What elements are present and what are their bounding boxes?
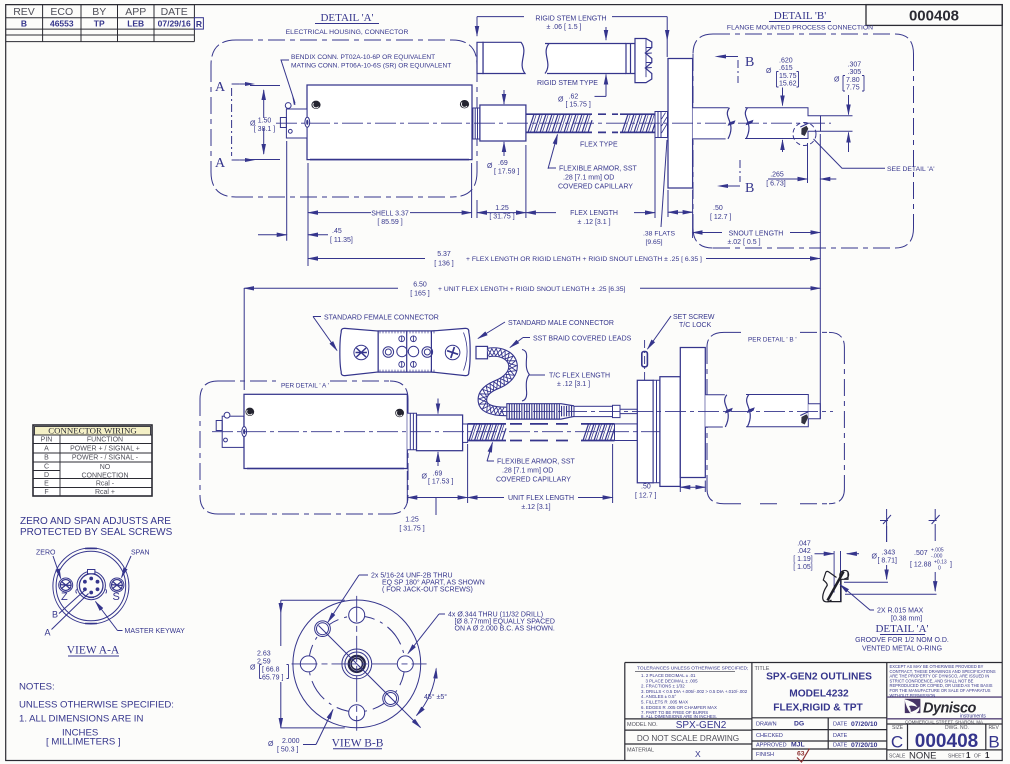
svg-text:.50: .50 [641, 484, 651, 491]
svg-text:OF: OF [974, 754, 981, 760]
svg-text:.69: .69 [433, 471, 443, 478]
svg-text:1: 1 [985, 751, 990, 760]
svg-text:UNLESS OTHERWISE SPECIFIED:: UNLESS OTHERWISE SPECIFIED: [19, 700, 174, 711]
svg-text:A: A [44, 446, 49, 453]
svg-text:E: E [44, 481, 49, 488]
svg-text:PIN: PIN [41, 437, 53, 444]
svg-text:Z: Z [61, 591, 68, 603]
svg-text:ZERO: ZERO [36, 550, 56, 557]
svg-text:T/C LOCK: T/C LOCK [679, 322, 712, 329]
svg-text:07/20/10: 07/20/10 [851, 742, 878, 749]
svg-text:Ø: Ø [422, 474, 428, 481]
svg-text:[ 31.75 ]: [ 31.75 ] [489, 214, 514, 221]
svg-text:000408: 000408 [909, 8, 959, 25]
svg-text:DG: DG [794, 721, 804, 728]
svg-text:DETAIL 'A': DETAIL 'A' [320, 12, 373, 24]
svg-text:COMMERCIAL STREET, SHARON, MA: COMMERCIAL STREET, SHARON, MA [905, 719, 983, 724]
svg-text:.28 [7.1 mm] OD: .28 [7.1 mm] OD [502, 468, 553, 475]
svg-text:EQ SP 180° APART, AS SHOWN: EQ SP 180° APART, AS SHOWN [382, 579, 485, 587]
svg-text:]: ] [950, 562, 952, 569]
svg-text:45° ±5°: 45° ±5° [424, 693, 447, 701]
svg-text:APP: APP [125, 6, 146, 18]
svg-text:7.80: 7.80 [846, 77, 860, 84]
svg-text:C: C [891, 733, 903, 752]
svg-text:[ 1.19]: [ 1.19] [793, 556, 813, 563]
svg-text:C: C [44, 464, 49, 471]
svg-text:A: A [45, 628, 51, 638]
svg-text:5.37: 5.37 [437, 251, 451, 258]
svg-text:SEE DETAIL 'A': SEE DETAIL 'A' [887, 166, 935, 173]
svg-text:B: B [21, 19, 27, 29]
svg-text:SIZE: SIZE [892, 725, 904, 731]
svg-text:Ø: Ø [268, 741, 274, 748]
svg-text:DATE: DATE [833, 722, 848, 728]
svg-text:TP: TP [94, 19, 105, 29]
svg-text:[ 31.75 ]: [ 31.75 ] [399, 525, 424, 532]
svg-text:2. FRACTIONS ± 1/32: 2. FRACTIONS ± 1/32 [641, 684, 685, 689]
svg-text:MATERIAL: MATERIAL [627, 748, 654, 754]
svg-text:1.25: 1.25 [495, 205, 509, 212]
svg-text:2x 5/16-24 UNF-2B THRU: 2x 5/16-24 UNF-2B THRU [371, 573, 453, 580]
svg-text:DRAWN: DRAWN [756, 722, 777, 728]
svg-text:3 PLACE DECIMAL ± .005: 3 PLACE DECIMAL ± .005 [646, 678, 699, 683]
svg-text:DO NOT SCALE DRAWING: DO NOT SCALE DRAWING [637, 734, 739, 743]
svg-text:1. ALL DIMENSIONS ARE IN: 1. ALL DIMENSIONS ARE IN [19, 714, 143, 725]
svg-text:TOLERANCES UNLESS OTHERWISE SP: TOLERANCES UNLESS OTHERWISE SPECIFIED; [637, 666, 748, 672]
svg-text:SNOUT LENGTH: SNOUT LENGTH [729, 230, 784, 237]
svg-text:± .12 [3.1 ]: ± .12 [3.1 ] [577, 219, 610, 226]
svg-text:MODEL4232: MODEL4232 [789, 689, 849, 700]
svg-text:MATING CONN. PT06A-10-6S (SR): MATING CONN. PT06A-10-6S (SR) OR EQUIVAL… [291, 63, 451, 70]
svg-text:VENTED METAL O-RING: VENTED METAL O-RING [862, 646, 942, 653]
svg-text:X: X [695, 749, 701, 759]
svg-text:[ 12.88: [ 12.88 [910, 562, 932, 569]
svg-text:COVERED CAPILLARY: COVERED CAPILLARY [496, 477, 571, 484]
svg-text:S: S [113, 591, 120, 603]
svg-text:[Ø 8.77mm] EQUALLY SPACED: [Ø 8.77mm] EQUALLY SPACED [455, 619, 555, 626]
svg-text:APPROVED: APPROVED [756, 743, 787, 749]
svg-text:[ 11.35]: [ 11.35] [330, 237, 353, 244]
svg-text:[ 8.71]: [ 8.71] [878, 558, 898, 565]
svg-text:.45: .45 [332, 228, 342, 235]
svg-text:NO: NO [100, 464, 111, 471]
svg-text:PER DETAIL ' B ': PER DETAIL ' B ' [748, 337, 797, 344]
svg-text:A: A [215, 156, 226, 171]
svg-text:2.000: 2.000 [282, 738, 300, 745]
svg-text:ECO: ECO [50, 6, 73, 18]
svg-text:F: F [44, 489, 48, 496]
svg-text:ELECTRICAL HOUSING, CONNECTOR: ELECTRICAL HOUSING, CONNECTOR [286, 29, 409, 36]
svg-text:+ UNIT FLEX LENGTH + RIGID SNO: + UNIT FLEX LENGTH + RIGID SNOUT LENGTH … [438, 286, 626, 293]
svg-text:[ 38.1 ]: [ 38.1 ] [254, 126, 275, 133]
svg-text:1. 2 PLACE DECIMAL ± .01: 1. 2 PLACE DECIMAL ± .01 [641, 673, 696, 678]
svg-text:MASTER KEYWAY: MASTER KEYWAY [125, 628, 186, 635]
svg-text:[ 6.73]: [ 6.73] [766, 181, 786, 188]
svg-text:SHELL 3.37: SHELL 3.37 [371, 210, 409, 217]
svg-text:FLEX,RIGID & TPT: FLEX,RIGID & TPT [773, 703, 863, 714]
svg-text:PROTECTED BY SEAL SCREWS: PROTECTED BY SEAL SCREWS [20, 527, 173, 538]
svg-text:8. ALL DIMENSIONS ARE IN INCHE: 8. ALL DIMENSIONS ARE IN INCHES. [641, 714, 717, 719]
svg-text:BY: BY [92, 6, 106, 18]
svg-text:CONNECTION: CONNECTION [81, 472, 128, 479]
svg-text:SET SCREW: SET SCREW [673, 314, 715, 321]
svg-text:SST BRAID COVERED LEADS: SST BRAID COVERED LEADS [533, 336, 632, 343]
svg-text:FLEXIBLE ARMOR, SST: FLEXIBLE ARMOR, SST [497, 459, 576, 466]
svg-text:VIEW B-B: VIEW B-B [332, 738, 384, 750]
svg-text:.50: .50 [713, 205, 723, 212]
svg-text:.507: .507 [914, 550, 928, 557]
svg-text:DATE: DATE [833, 743, 848, 749]
svg-text:GROOVE FOR 1/2 NOM O.D.: GROOVE FOR 1/2 NOM O.D. [855, 637, 949, 644]
svg-text:[0.38 mm]: [0.38 mm] [891, 616, 922, 623]
svg-text:65.79 ]: 65.79 ] [262, 675, 283, 682]
svg-text:POWER + / SIGNAL +: POWER + / SIGNAL + [70, 446, 140, 453]
svg-text:± .06 [ 1.5 ]: ± .06 [ 1.5 ] [547, 24, 582, 31]
svg-text:.307: .307 [848, 62, 862, 69]
svg-text:2.63: 2.63 [257, 651, 271, 658]
svg-text:A: A [215, 80, 226, 95]
svg-text:15.62: 15.62 [779, 81, 797, 88]
svg-text:Ø: Ø [250, 665, 256, 672]
svg-text:NONE: NONE [909, 751, 936, 762]
svg-text:VIEW A-A: VIEW A-A [67, 645, 120, 657]
svg-text:1.50: 1.50 [258, 118, 272, 125]
svg-text:15.75: 15.75 [779, 73, 797, 80]
svg-text:[ 17.59 ]: [ 17.59 ] [494, 169, 519, 176]
svg-text:( FOR JACK-OUT SCREWS): ( FOR JACK-OUT SCREWS) [382, 587, 473, 594]
svg-text:1: 1 [966, 751, 971, 760]
svg-text:CONNECTOR WIRING: CONNECTOR WIRING [48, 426, 137, 436]
svg-text:T/C FLEX LENGTH: T/C FLEX LENGTH [549, 373, 610, 380]
svg-text:Ø: Ø [558, 97, 564, 104]
svg-text:[ 1.05]: [ 1.05] [793, 564, 813, 571]
svg-text:BENDIX CONN. PT02A-10-6P OR EQ: BENDIX CONN. PT02A-10-6P OR EQUIVALENT [291, 54, 435, 61]
svg-text:07/20/10: 07/20/10 [851, 721, 878, 728]
svg-text:POWER - / SIGNAL -: POWER - / SIGNAL - [72, 455, 139, 462]
svg-text:63: 63 [797, 751, 805, 758]
svg-text:.615: .615 [779, 65, 793, 72]
svg-text:4x Ø.344 THRU (11/32 DRILL): 4x Ø.344 THRU (11/32 DRILL) [448, 612, 543, 619]
svg-text:0: 0 [938, 566, 941, 572]
svg-text:[9.65]: [9.65] [645, 239, 662, 246]
svg-text:SHEET: SHEET [948, 754, 965, 760]
svg-text:SPX-GEN2: SPX-GEN2 [676, 720, 727, 731]
svg-text:.042: .042 [797, 548, 811, 555]
svg-text:.305: .305 [848, 69, 862, 76]
svg-text:[ 15.75 ]: [ 15.75 ] [566, 102, 591, 109]
svg-text:[ 50.3 ]: [ 50.3 ] [277, 747, 298, 754]
svg-text:STANDARD MALE CONNECTOR: STANDARD MALE CONNECTOR [508, 320, 614, 327]
svg-text:07/29/16: 07/29/16 [158, 19, 191, 29]
svg-text:5. FILLETS R .005 MAX: 5. FILLETS R .005 MAX [641, 700, 688, 705]
svg-text:.047: .047 [797, 541, 811, 548]
svg-text:B: B [988, 733, 999, 752]
svg-text:D: D [44, 472, 49, 479]
svg-text:WITHOUT PERMISSION.: WITHOUT PERMISSION. [890, 693, 937, 698]
svg-text:REV: REV [989, 725, 1000, 731]
svg-text:[ 66.8: [ 66.8 [262, 667, 280, 674]
svg-text:CHECKED: CHECKED [756, 733, 783, 739]
svg-text:PER DETAIL ' A ': PER DETAIL ' A ' [281, 383, 329, 390]
svg-text:FLANGE MOUNTED PROCESS CONNECT: FLANGE MOUNTED PROCESS CONNECTION [727, 25, 873, 32]
svg-text:[ 85.59 ]: [ 85.59 ] [377, 219, 402, 226]
svg-text:1.25: 1.25 [405, 517, 419, 524]
svg-text:+ FLEX LENGTH OR RIGID LENGTH: + FLEX LENGTH OR RIGID LENGTH + RIGID SN… [466, 256, 702, 263]
svg-text:MJL: MJL [791, 742, 805, 749]
svg-text:[ 136 ]: [ 136 ] [434, 261, 454, 268]
svg-text:46553: 46553 [50, 19, 74, 29]
svg-text:SPAN: SPAN [131, 550, 150, 557]
svg-text:.62: .62 [569, 94, 579, 101]
svg-text:7.75: 7.75 [846, 85, 860, 92]
svg-text:.38 FLATS: .38 FLATS [643, 231, 675, 238]
svg-text:R: R [196, 19, 202, 29]
svg-text:REV: REV [13, 6, 35, 18]
svg-text:B: B [44, 455, 49, 462]
svg-text:2.59: 2.59 [257, 659, 271, 666]
svg-text:FUNCTION: FUNCTION [87, 437, 123, 444]
svg-text:DETAIL 'A': DETAIL 'A' [875, 623, 928, 635]
svg-text:.69: .69 [498, 160, 508, 167]
svg-text:[ 165 ]: [ 165 ] [410, 291, 430, 298]
svg-text:.28 [7.1 mm] OD: .28 [7.1 mm] OD [563, 175, 614, 182]
svg-text:.343: .343 [882, 550, 896, 557]
svg-text:[ 12.7 ]: [ 12.7 ] [710, 214, 731, 221]
svg-text:B: B [745, 181, 754, 196]
svg-text:B: B [52, 610, 58, 620]
svg-text:± .12 [3.1 ]: ± .12 [3.1 ] [557, 381, 590, 388]
svg-text:ON A Ø 2.000 B.C. AS SHOWN.: ON A Ø 2.000 B.C. AS SHOWN. [455, 626, 555, 633]
svg-text:RIGID STEM LENGTH: RIGID STEM LENGTH [535, 16, 606, 23]
svg-text:DATE: DATE [161, 6, 188, 18]
svg-text:[ 12.7 ]: [ 12.7 ] [635, 493, 656, 500]
svg-text:FLEXIBLE ARMOR, SST: FLEXIBLE ARMOR, SST [559, 166, 638, 173]
svg-text:4. ANGLES ± 0.5°: 4. ANGLES ± 0.5° [641, 694, 676, 699]
svg-text:NOTES:: NOTES: [19, 682, 55, 693]
svg-text:RIGID STEM TYPE: RIGID STEM TYPE [537, 80, 598, 87]
svg-text:Ø: Ø [766, 68, 772, 75]
svg-text:Rcal -: Rcal - [96, 481, 115, 488]
svg-text:000408: 000408 [915, 731, 978, 752]
svg-text:±.12 [3.1]: ±.12 [3.1] [521, 504, 550, 511]
svg-text:MODEL NO.: MODEL NO. [627, 722, 658, 728]
svg-text:6.50: 6.50 [413, 282, 427, 289]
svg-text:±.02 [ 0.5 ]: ±.02 [ 0.5 ] [727, 239, 760, 246]
svg-text:FINISH: FINISH [756, 752, 774, 758]
svg-text:COVERED CAPILLARY: COVERED CAPILLARY [558, 184, 633, 191]
svg-text:STANDARD FEMALE CONNECTOR: STANDARD FEMALE CONNECTOR [324, 315, 439, 322]
svg-text:FLEX TYPE: FLEX TYPE [580, 142, 618, 149]
svg-text:UNIT FLEX LENGTH: UNIT FLEX LENGTH [508, 495, 574, 502]
svg-text:LEB: LEB [127, 19, 144, 29]
svg-text:DETAIL 'B': DETAIL 'B' [774, 10, 826, 22]
svg-text:Rcal +: Rcal + [95, 489, 115, 496]
svg-text:3. DRILLS < 0.5 DIA +.005/-.00: 3. DRILLS < 0.5 DIA +.005/-.002 > 0.5 DI… [641, 689, 748, 694]
svg-text:FLEX LENGTH: FLEX LENGTH [570, 210, 618, 217]
svg-text:DATE: DATE [833, 733, 848, 739]
svg-text:B: B [745, 55, 754, 70]
svg-text:[ 17.53 ]: [ 17.53 ] [428, 479, 453, 486]
svg-text:ZERO AND SPAN ADJUSTS ARE: ZERO AND SPAN ADJUSTS ARE [20, 516, 171, 527]
svg-text:.265: .265 [770, 172, 784, 179]
svg-text:6. EDGES R .005 OR CHAMFER MAX: 6. EDGES R .005 OR CHAMFER MAX [641, 705, 717, 710]
svg-text:SPX-GEN2 OUTLINES: SPX-GEN2 OUTLINES [766, 672, 872, 683]
svg-text:Ø: Ø [834, 77, 840, 84]
svg-text:Ø: Ø [487, 163, 493, 170]
svg-text:.620: .620 [779, 58, 793, 65]
svg-text:[ MILLIMETERS ]: [ MILLIMETERS ] [46, 737, 121, 748]
svg-text:2X R.015 MAX: 2X R.015 MAX [877, 608, 924, 615]
svg-text:SCALE: SCALE [889, 754, 906, 760]
